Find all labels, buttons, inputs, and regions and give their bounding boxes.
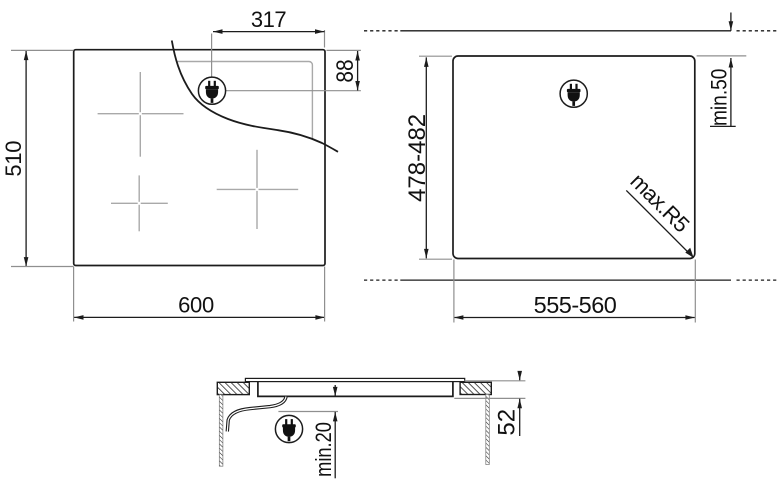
- svg-text:317: 317: [251, 7, 286, 32]
- svg-text:510: 510: [1, 141, 26, 177]
- svg-text:555-560: 555-560: [534, 292, 617, 318]
- svg-text:min.20: min.20: [312, 422, 336, 477]
- svg-text:478-482: 478-482: [404, 114, 431, 202]
- svg-text:88: 88: [331, 59, 358, 82]
- svg-text:52: 52: [494, 409, 521, 436]
- svg-text:600: 600: [178, 293, 214, 318]
- svg-text:min.50: min.50: [707, 69, 732, 126]
